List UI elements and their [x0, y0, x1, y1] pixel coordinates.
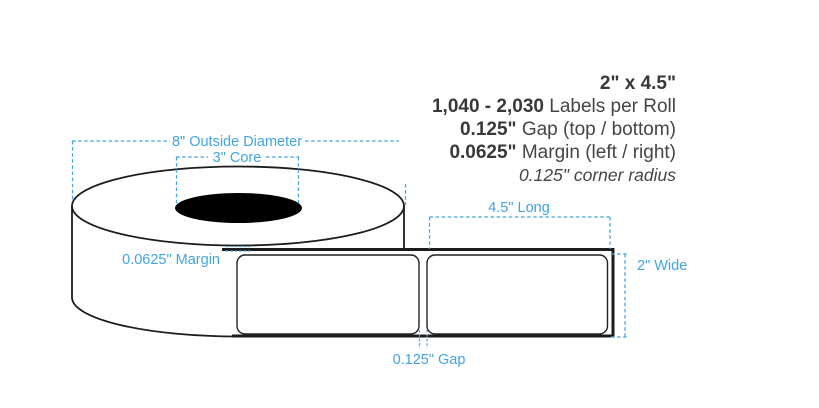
width-label: 2" Wide — [637, 258, 687, 274]
spec-gap-label: Gap (top / bottom) — [522, 119, 676, 140]
margin-label: 0.0625" Margin — [122, 252, 220, 268]
spec-labels-label: Labels per Roll — [549, 96, 676, 117]
roll-bottom-curve — [72, 298, 238, 337]
spec-labels-range: 1,040 - 2,030 — [432, 96, 544, 117]
liner-strip-group — [222, 250, 613, 337]
gap-label: 0.125" Gap — [393, 352, 466, 368]
product-specs: 2" x 4.5" 1,040 - 2,030 Labels per Roll … — [356, 72, 676, 187]
spec-size-value: 2" x 4.5" — [600, 73, 676, 94]
spec-corner-radius-note: 0.125" corner radius — [519, 165, 676, 185]
roll-core-hole — [175, 193, 302, 223]
die-cut-label-2 — [427, 255, 608, 334]
spec-margin-label: Margin (left / right) — [522, 142, 676, 163]
spec-gap-line: 0.125" Gap (top / bottom) — [356, 118, 676, 141]
spec-size-line: 2" x 4.5" — [356, 72, 676, 95]
spec-gap-value: 0.125" — [460, 119, 517, 140]
spec-margin-value: 0.0625" — [449, 142, 516, 163]
outside-diameter-label: 8" Outside Diameter — [172, 134, 302, 150]
spec-margin-line: 0.0625" Margin (left / right) — [356, 141, 676, 164]
core-label: 3" Core — [213, 150, 262, 166]
roll-diagram-canvas: 8" Outside Diameter 3" Core 0.0625" Marg… — [0, 0, 819, 408]
label-roll-diagram-page: 8" Outside Diameter 3" Core 0.0625" Marg… — [0, 0, 819, 408]
length-label: 4.5" Long — [488, 200, 550, 216]
die-cut-label-1 — [237, 255, 419, 334]
spec-corner-radius-line: 0.125" corner radius — [356, 164, 676, 187]
spec-labels-per-roll-line: 1,040 - 2,030 Labels per Roll — [356, 95, 676, 118]
